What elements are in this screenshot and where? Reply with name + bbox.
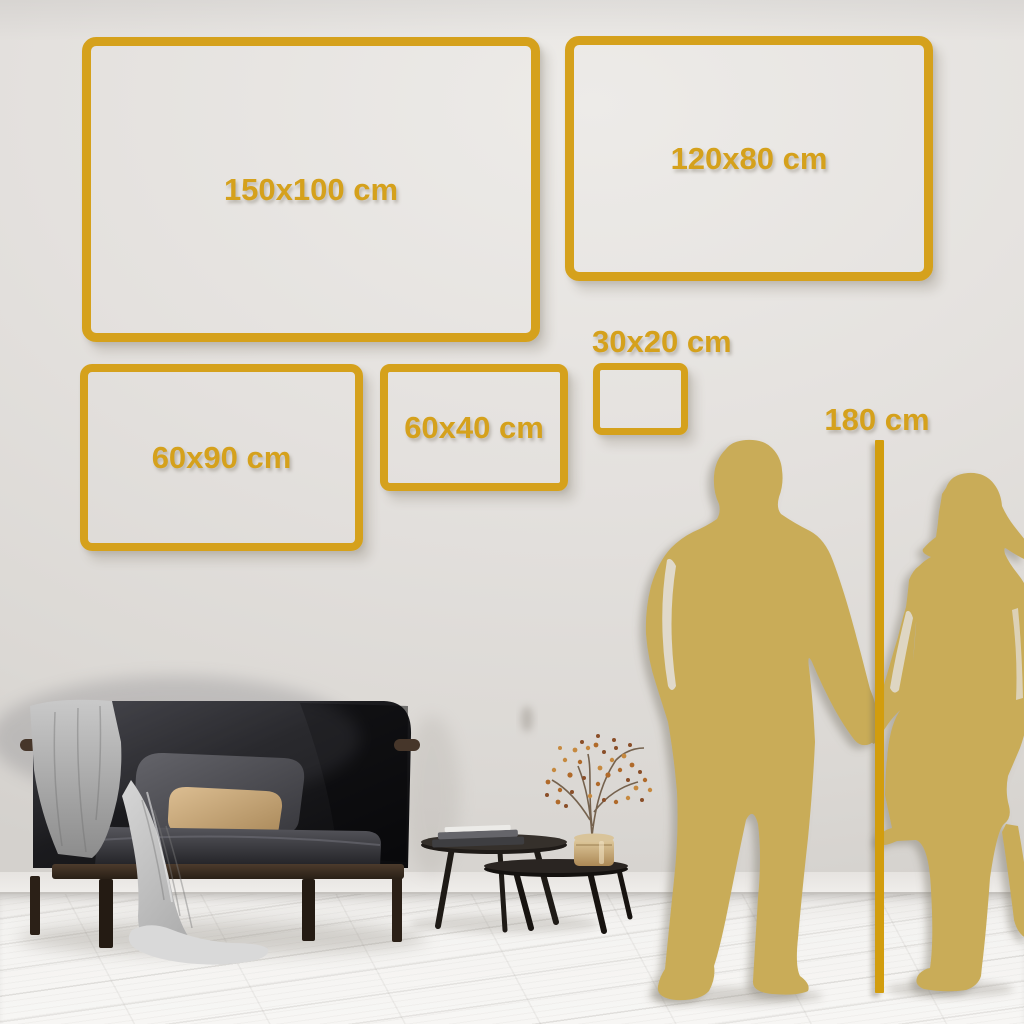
size-label-150x100: 150x100 cm	[224, 172, 398, 208]
height-reference-line	[875, 440, 884, 993]
size-frame-60x40: 60x40 cm	[380, 364, 568, 491]
size-label-120x80: 120x80 cm	[671, 141, 828, 177]
size-frame-60x90: 60x90 cm	[80, 364, 363, 551]
dried-branch	[545, 734, 652, 836]
size-guide-scene: 150x100 cm 120x80 cm 60x90 cm 60x40 cm 3…	[0, 0, 1024, 1024]
sofa-arm-rail-right	[394, 739, 420, 751]
woman-silhouette	[862, 473, 1024, 991]
size-label-60x90: 60x90 cm	[152, 440, 292, 476]
man-silhouette	[646, 440, 878, 1000]
size-frame-30x20	[593, 363, 688, 435]
size-label-60x40: 60x40 cm	[404, 410, 544, 446]
book-stack	[432, 824, 525, 847]
size-label-30x20: 30x20 cm	[592, 324, 732, 360]
woman-right-leg	[1002, 824, 1024, 940]
size-frame-150x100: 150x100 cm	[82, 37, 540, 342]
size-frame-120x80: 120x80 cm	[565, 36, 933, 281]
height-reference-label: 180 cm	[824, 402, 929, 438]
couple-silhouettes	[646, 440, 1024, 1000]
